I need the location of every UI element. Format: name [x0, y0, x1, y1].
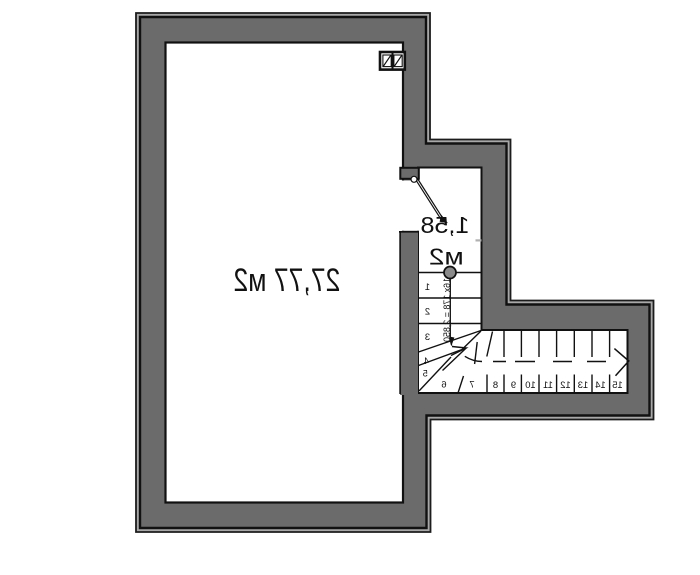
svg-text:1: 1 — [425, 282, 430, 293]
svg-text:м2: м2 — [429, 244, 464, 270]
svg-text:1,58: 1,58 — [421, 212, 470, 238]
svg-text:13: 13 — [578, 380, 589, 391]
svg-text:5: 5 — [423, 369, 428, 379]
svg-text:3: 3 — [425, 332, 430, 343]
svg-text:27,77 м2: 27,77 м2 — [233, 262, 340, 298]
svg-text:8: 8 — [493, 380, 498, 391]
svg-text:14: 14 — [595, 380, 606, 391]
svg-text:6: 6 — [441, 380, 446, 391]
svg-text:10: 10 — [525, 380, 536, 391]
svg-text:9: 9 — [511, 380, 516, 391]
svg-text:11: 11 — [543, 380, 553, 391]
svg-text:7: 7 — [469, 380, 474, 391]
svg-text:15: 15 — [612, 380, 623, 391]
svg-text:12: 12 — [560, 380, 571, 391]
svg-text:16x 178 = 2,850: 16x 178 = 2,850 — [442, 278, 453, 342]
svg-text:2: 2 — [425, 307, 430, 318]
svg-text:4: 4 — [424, 356, 429, 367]
